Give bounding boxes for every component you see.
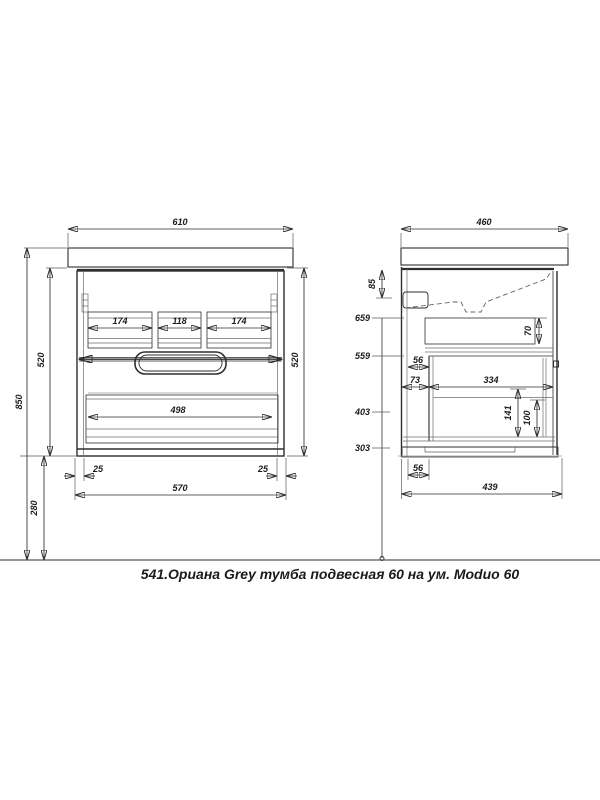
side-dim-depths: 73 334 <box>402 375 553 387</box>
side-dim-100: 100 <box>522 410 532 425</box>
side-dim-659: 659 <box>355 313 370 323</box>
front-dim-610: 610 <box>172 217 187 227</box>
side-dim-rails: 141 100 <box>503 389 545 437</box>
side-dim-gap-bottom: 56 <box>408 459 429 480</box>
drawer-gap-band <box>79 358 282 362</box>
side-view: 460 85 6 <box>354 217 568 561</box>
front-dim-top-width: 610 <box>68 217 293 247</box>
front-view: 610 <box>14 217 308 560</box>
front-dims-bottom: 25 25 570 <box>64 458 297 500</box>
front-countertop <box>68 248 293 267</box>
front-cabinet-inner-walls <box>77 271 284 456</box>
front-dims-right: 520 <box>287 268 308 456</box>
side-dim-303: 303 <box>355 443 370 453</box>
side-top-drawer <box>425 318 553 352</box>
front-dims-left: 850 520 280 <box>14 248 76 560</box>
side-countertop <box>401 248 568 265</box>
side-dim-403: 403 <box>354 407 370 417</box>
side-dim-439: 439 <box>481 482 497 492</box>
side-dim-bottom-depth: 439 <box>402 458 563 499</box>
front-dim-570: 570 <box>172 483 187 493</box>
front-dim-520-right: 520 <box>290 352 300 367</box>
side-dim-56-top: 56 <box>413 355 424 365</box>
side-dim-460: 460 <box>475 217 491 227</box>
side-dim-85: 85 <box>367 278 377 289</box>
front-dim-compartments: 174 118 174 <box>88 316 271 328</box>
side-dim-gap-top: 56 <box>408 355 429 374</box>
side-dim-334: 334 <box>483 375 498 385</box>
vanity-dimension-drawing: 610 <box>0 0 600 800</box>
mount-bracket-right <box>271 294 277 312</box>
drawer-handle <box>135 352 226 374</box>
wall-bracket <box>554 361 559 367</box>
side-dim-559: 559 <box>355 351 370 361</box>
side-dim-56-bottom: 56 <box>413 463 424 473</box>
side-dim-70: 70 <box>523 326 533 336</box>
front-dim-25-left: 25 <box>92 464 104 474</box>
front-dim-25-right: 25 <box>257 464 269 474</box>
front-dim-520-left: 520 <box>36 352 46 367</box>
front-dim-bottom-drawer: 498 <box>88 405 272 417</box>
front-dim-498: 498 <box>169 405 185 415</box>
side-dim-top-depth: 460 <box>401 217 568 247</box>
front-dim-280: 280 <box>29 500 39 516</box>
side-dim-141: 141 <box>503 405 513 420</box>
technical-drawing-page: 610 <box>0 0 600 800</box>
basin-outline <box>403 272 551 312</box>
drawing-caption: 541.Ориана Grey тумба подвесная 60 на ум… <box>141 566 520 582</box>
mount-bracket-left <box>82 294 88 312</box>
front-cabinet-body <box>77 271 284 456</box>
front-dim-174-right: 174 <box>231 316 246 326</box>
side-bottom-drawer <box>429 356 559 441</box>
front-dim-118: 118 <box>172 316 186 326</box>
front-dim-850: 850 <box>14 394 24 409</box>
side-dim-73: 73 <box>410 375 420 385</box>
front-dim-174-left: 174 <box>112 316 127 326</box>
side-dim-basin-drop: 85 <box>367 270 392 298</box>
bottom-drawer <box>86 393 278 443</box>
side-carcass <box>401 267 557 457</box>
side-bottom-panel <box>398 437 562 457</box>
height-reference-line: 659 559 403 303 <box>354 313 404 561</box>
